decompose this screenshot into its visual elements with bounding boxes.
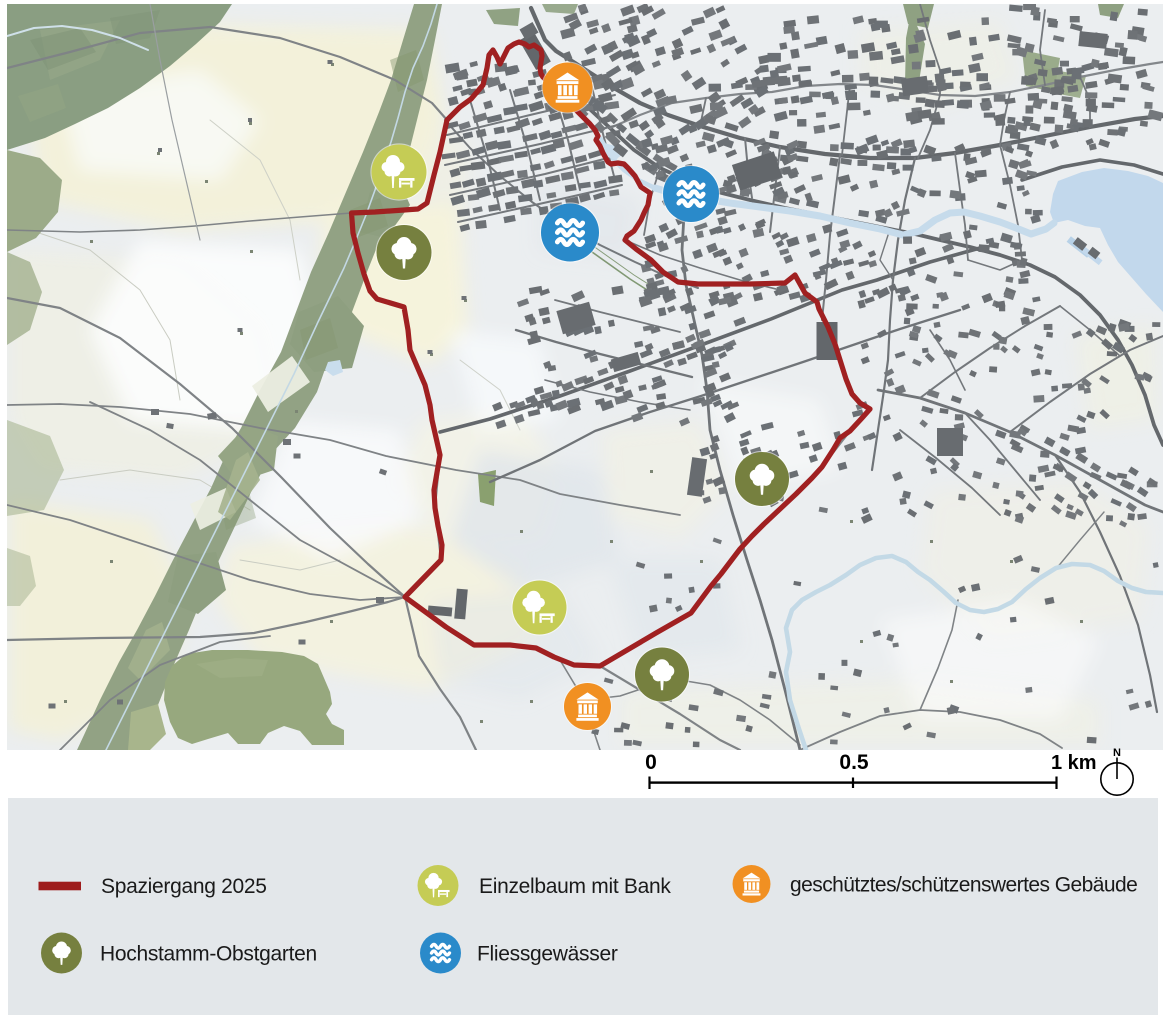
svg-text:Hochstamm-Obstgarten: Hochstamm-Obstgarten [100,943,317,966]
svg-text:0.5: 0.5 [839,751,869,774]
svg-text:Einzelbaum mit Bank: Einzelbaum mit Bank [479,875,671,898]
svg-text:1 km: 1 km [1051,752,1097,774]
svg-text:N: N [1113,747,1121,759]
svg-text:geschütztes/schützenswertes Ge: geschütztes/schützenswertes Gebäude [790,874,1137,897]
svg-text:Fliessgewässer: Fliessgewässer [477,943,618,966]
svg-text:0: 0 [645,751,657,774]
svg-text:Spaziergang 2025: Spaziergang 2025 [101,875,267,898]
